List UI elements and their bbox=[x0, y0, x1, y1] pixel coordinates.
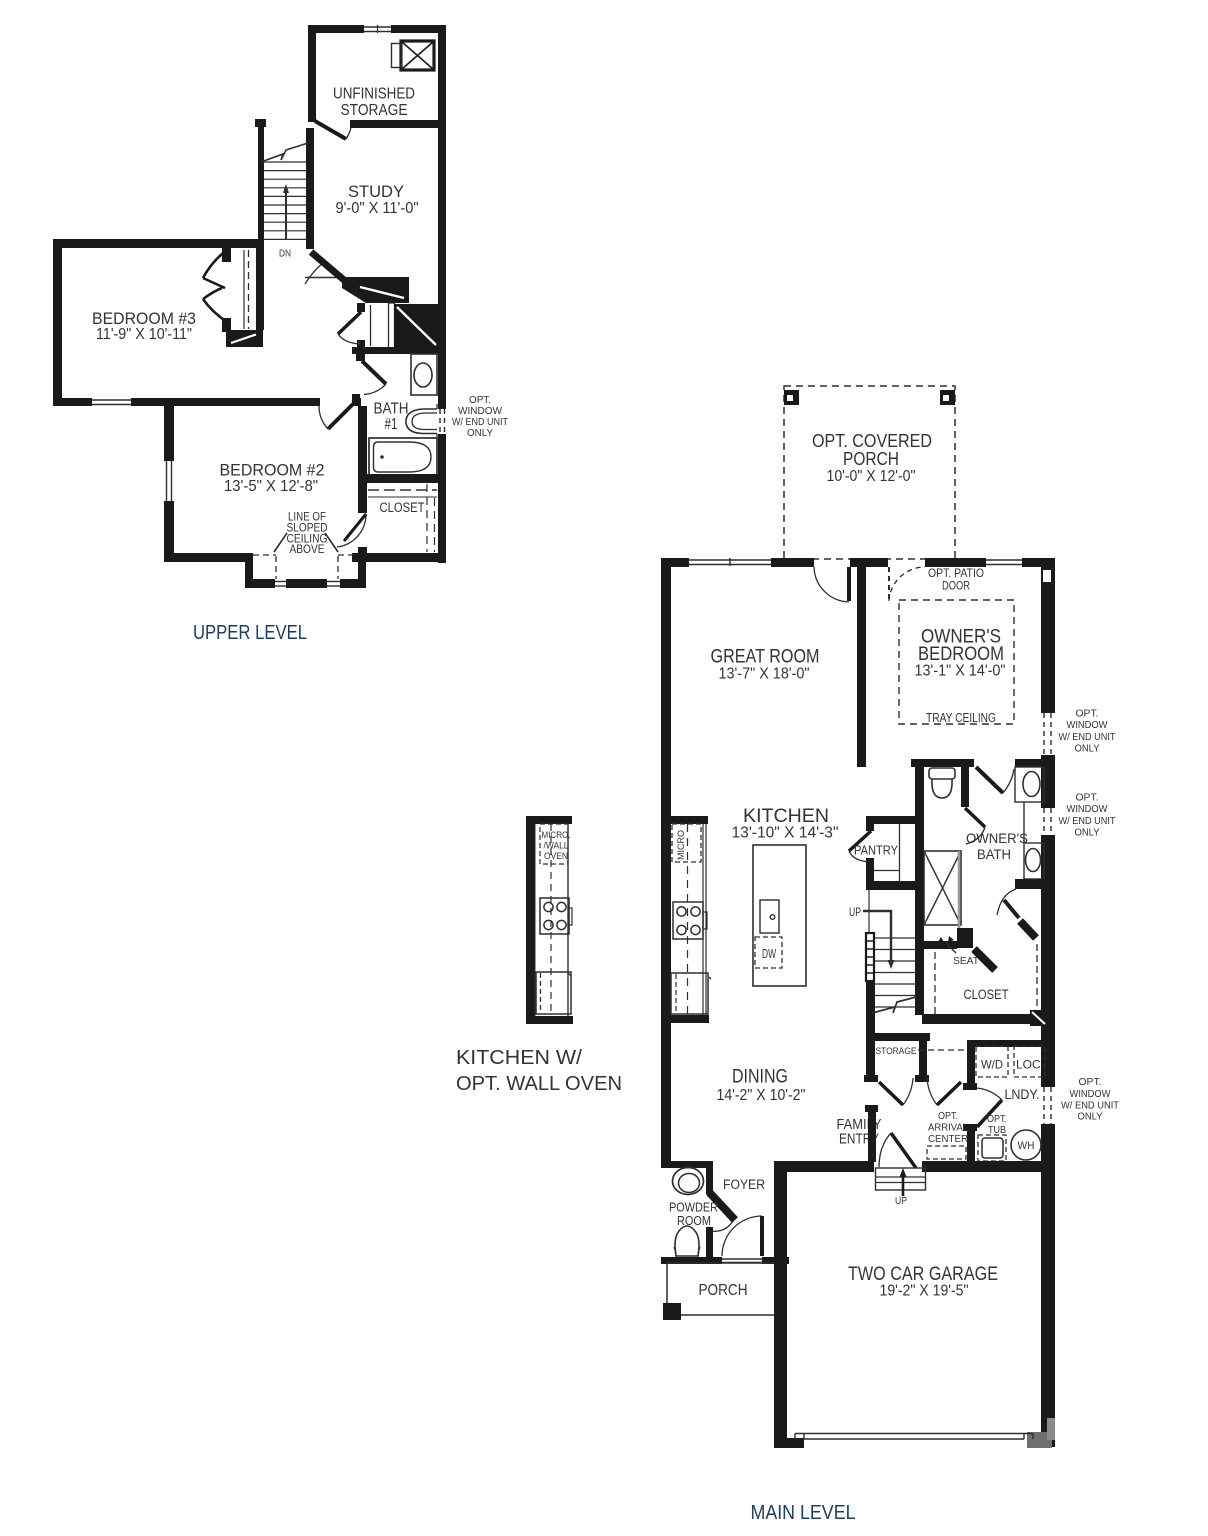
svg-text:LNDY.: LNDY. bbox=[1005, 1086, 1040, 1102]
svg-text:OPT. COVERED: OPT. COVERED bbox=[812, 431, 932, 451]
svg-text:FOYER: FOYER bbox=[723, 1177, 765, 1192]
svg-text:WINDOW: WINDOW bbox=[1067, 803, 1108, 815]
svg-text:BATH: BATH bbox=[977, 846, 1011, 862]
svg-text:WINDOW: WINDOW bbox=[1067, 719, 1108, 731]
svg-text:BATH: BATH bbox=[374, 401, 409, 418]
svg-text:ONLY: ONLY bbox=[467, 427, 493, 439]
svg-text:UP: UP bbox=[895, 1195, 907, 1207]
svg-text:GREAT ROOM: GREAT ROOM bbox=[711, 647, 820, 668]
svg-text:ABOVE: ABOVE bbox=[290, 542, 325, 556]
svg-text:PORCH: PORCH bbox=[699, 1282, 748, 1299]
svg-text:DN: DN bbox=[279, 248, 291, 260]
svg-text:UP: UP bbox=[849, 905, 861, 919]
svg-text:13'-5" X 12'-8": 13'-5" X 12'-8" bbox=[224, 478, 318, 495]
svg-text:ONLY: ONLY bbox=[1075, 827, 1100, 839]
svg-text:OPT.: OPT. bbox=[938, 1110, 958, 1122]
svg-text:BEDROOM #2: BEDROOM #2 bbox=[220, 462, 325, 480]
svg-text:/WALL: /WALL bbox=[544, 841, 569, 852]
svg-text:13'-10" X 14'-3": 13'-10" X 14'-3" bbox=[732, 825, 839, 842]
svg-text:W/ END UNIT: W/ END UNIT bbox=[1059, 731, 1117, 743]
svg-text:STORAGE: STORAGE bbox=[341, 102, 408, 119]
svg-text:13'-1" X 14'-0": 13'-1" X 14'-0" bbox=[915, 663, 1006, 680]
svg-text:STORAGE: STORAGE bbox=[876, 1046, 917, 1057]
svg-text:10'-0" X 12'-0": 10'-0" X 12'-0" bbox=[827, 468, 916, 485]
svg-text:OPT.: OPT. bbox=[1076, 708, 1099, 720]
svg-text:14'-2" X 10'-2": 14'-2" X 10'-2" bbox=[717, 1087, 806, 1104]
svg-text:CLOSET: CLOSET bbox=[964, 987, 1009, 1002]
svg-text:PORCH: PORCH bbox=[843, 449, 899, 469]
svg-text:9'-0" X 11'-0": 9'-0" X 11'-0" bbox=[336, 200, 419, 217]
svg-text:UNFINISHED: UNFINISHED bbox=[333, 86, 415, 103]
svg-text:DOOR: DOOR bbox=[942, 579, 970, 593]
svg-text:UPPER LEVEL: UPPER LEVEL bbox=[193, 621, 307, 644]
svg-text:#1: #1 bbox=[385, 416, 398, 433]
svg-text:PANTRY: PANTRY bbox=[854, 844, 899, 858]
svg-text:MAIN LEVEL: MAIN LEVEL bbox=[751, 1501, 856, 1524]
svg-text:OPT.: OPT. bbox=[1076, 792, 1099, 804]
svg-text:MICRO: MICRO bbox=[676, 830, 686, 860]
svg-text:W/ END UNIT: W/ END UNIT bbox=[1059, 815, 1117, 827]
svg-text:DINING: DINING bbox=[732, 1067, 788, 1088]
svg-text:OVEN: OVEN bbox=[544, 851, 568, 862]
svg-text:ARRIVAL: ARRIVAL bbox=[928, 1122, 968, 1134]
svg-text:TRAY CEILING: TRAY CEILING bbox=[926, 710, 996, 725]
svg-text:OPT. WALL OVEN: OPT. WALL OVEN bbox=[456, 1072, 622, 1095]
svg-text:OPT.: OPT. bbox=[1079, 1076, 1102, 1088]
svg-text:CENTER: CENTER bbox=[928, 1133, 968, 1145]
svg-text:STUDY: STUDY bbox=[348, 182, 404, 201]
svg-text:DW: DW bbox=[762, 947, 776, 961]
svg-text:ONLY: ONLY bbox=[1075, 743, 1100, 755]
svg-text:W/D: W/D bbox=[981, 1058, 1003, 1072]
svg-text:SEAT: SEAT bbox=[953, 955, 980, 967]
svg-text:ONLY: ONLY bbox=[1078, 1111, 1103, 1123]
svg-text:MICRO.: MICRO. bbox=[542, 830, 571, 841]
svg-text:11'-9" X 10'-11": 11'-9" X 10'-11" bbox=[96, 326, 192, 343]
svg-text:WH: WH bbox=[1018, 1140, 1035, 1152]
svg-text:KITCHEN W/: KITCHEN W/ bbox=[456, 1046, 582, 1069]
svg-text:CLOSET: CLOSET bbox=[380, 500, 425, 515]
svg-text:ROOM: ROOM bbox=[677, 1214, 711, 1228]
svg-text:LOC.: LOC. bbox=[1016, 1058, 1044, 1072]
svg-text:OWNER'S: OWNER'S bbox=[966, 830, 1028, 846]
svg-text:19'-2" X 19'-5": 19'-2" X 19'-5" bbox=[880, 1283, 969, 1300]
svg-text:TUB: TUB bbox=[988, 1124, 1006, 1136]
svg-text:WINDOW: WINDOW bbox=[1070, 1088, 1111, 1100]
svg-text:13'-7" X 18'-0": 13'-7" X 18'-0" bbox=[719, 666, 810, 683]
svg-text:POWDER: POWDER bbox=[669, 1201, 718, 1215]
